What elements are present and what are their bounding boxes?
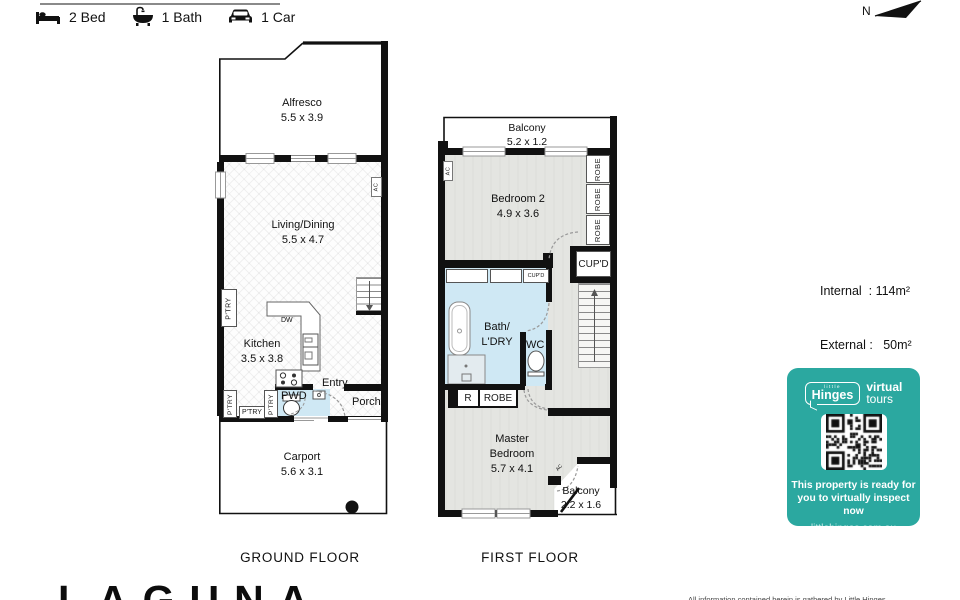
robe-box: ROBE [586,155,610,183]
balcony2-label: Balcony2.2 x 1.6 [546,484,616,512]
r-label: R [464,393,471,404]
feature-car: 1 Car [228,8,295,26]
robe-label: ROBE [594,157,603,180]
vanity-box [446,269,488,283]
internal-area: Internal : 114m² [820,282,930,300]
pwd-label: PWD [281,390,307,402]
north-label: N [862,4,871,18]
dishwasher-label: DW [281,317,293,324]
virtual-tour-badge: little Hinges virtual tours This propert… [787,368,920,526]
pantry-label: P'TRY [242,409,262,416]
qr-code [821,414,887,470]
pantry-box: P'TRY [221,289,237,327]
pantry-box: P'TRY [264,390,278,418]
cupboard-label: CUP'D [578,259,608,270]
bath-count-label: 1 Bath [162,9,202,25]
robe-box: ROBE [586,184,610,214]
floorplan-page: 2 Bed 1 Bath 1 Car N [0,0,960,600]
balcony1-label: Balcony5.2 x 1.2 [467,121,587,149]
bath-icon [132,6,154,28]
car-count-label: 1 Car [261,9,295,25]
robe-label: ROBE [594,218,603,241]
developer-logo: LAGUNA [58,577,323,600]
ground-stairs [356,277,383,315]
alfresco-label: Alfresco5.5 x 3.9 [242,96,362,126]
badge-message: This property is ready for you to virtua… [787,479,920,518]
pantry-box: P'TRY [239,406,265,419]
pantry-box: P'TRY [223,390,237,418]
cupboard-small-box: CUP'D [523,269,549,283]
entry-label: Entry [322,377,348,389]
vanity-box [490,269,522,283]
top-divider [40,3,280,5]
ac-unit: AC [443,161,453,181]
disclaimer-text: All information contained herein is gath… [688,595,960,600]
pantry-label: P'TRY [227,394,234,415]
master-bedroom-label: Master Bedroom 5.7 x 4.1 [452,432,572,477]
little-hinges-logo: little Hinges virtual tours [805,381,903,405]
robe-label: ROBE [484,393,512,404]
bed-icon [36,8,61,26]
feature-bath: 1 Bath [132,6,202,28]
pantry-label: P'TRY [226,297,233,319]
logo-hinges-text: Hinges [812,389,854,402]
living-dining-label: Living/Dining5.5 x 4.7 [243,218,363,248]
bed-count-label: 2 Bed [69,9,106,25]
cupboard-box: CUP'D [576,251,611,277]
robe-box: ROBE [586,215,610,245]
first-stairs [578,283,611,368]
ac-label: AC [445,167,451,176]
ac-unit: AC [371,177,382,197]
ac-label: AC [373,183,379,192]
external-area: External : 50m² [820,336,930,354]
feature-bed: 2 Bed [36,8,106,26]
kitchen-label: Kitchen3.5 x 3.8 [212,337,312,367]
first-floor-title: FIRST FLOOR [420,550,640,565]
carport-post [346,501,359,514]
carport-label: Carport5.6 x 3.1 [242,450,362,480]
ground-floor-title: GROUND FLOOR [190,550,410,565]
bedroom2-label: Bedroom 24.9 x 3.6 [458,192,578,222]
bath-ldry-label: Bath/L'DRY [457,320,537,350]
robe-box: ROBE [478,388,518,408]
cupboard-label: CUP'D [528,273,545,279]
virtual-tours-text: virtual tours [866,381,902,405]
badge-url: littlehinges.com.au [811,523,896,534]
car-icon [228,8,253,26]
robe-label: ROBE [594,187,603,210]
wc-label: WC [526,339,544,351]
robe-r-box: R [456,388,480,408]
porch-label: Porch [352,396,381,408]
north-arrow-icon [875,1,921,18]
property-features: 2 Bed 1 Bath 1 Car [36,6,295,28]
hinges-logo-bubble: little Hinges [805,382,861,405]
qr-code-canvas [826,414,882,470]
pantry-label: P'TRY [268,394,275,415]
